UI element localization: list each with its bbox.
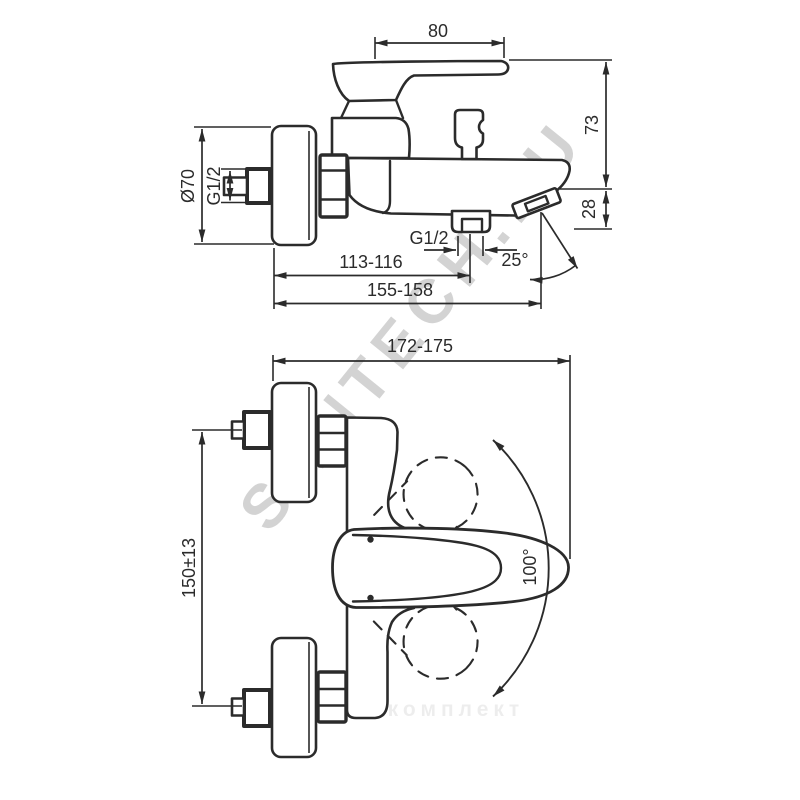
dim-spout-drop-label: 28 <box>579 199 599 219</box>
pipe-stub-plan-bottom <box>232 699 244 716</box>
dim-inlet-thread-label: G1/2 <box>204 166 224 205</box>
side-view-faucet <box>224 61 570 245</box>
drawing-page: SANTECH.RU сантехкомплект <box>0 0 800 800</box>
hex-nut-plan-top <box>318 416 346 466</box>
shower-outlet-flange <box>452 211 490 232</box>
inlet-pipe-stub-side <box>224 178 247 196</box>
top-connection-plan <box>232 383 346 502</box>
side-view: 80 73 28 Ø70 <box>178 21 612 309</box>
lever-pivot-dot-bottom <box>367 595 373 601</box>
dim-shower-outlet-thread-label: G1/2 <box>409 228 448 248</box>
dim-connection-spacing: 150±13 <box>179 430 242 706</box>
plan-view: 100° 172-175 150±13 <box>179 336 570 757</box>
dim-spout-angle: 25° <box>501 213 577 280</box>
dim-connection-spacing-label: 150±13 <box>179 538 199 598</box>
lever-pivot-dot-top <box>367 536 373 542</box>
hex-nut-plan-bottom <box>318 672 346 722</box>
diverter-knob <box>455 110 483 159</box>
lever-handle-side <box>333 61 508 101</box>
dim-handle-width-label: 80 <box>428 21 448 41</box>
wall-escutcheon-side <box>272 126 316 245</box>
technical-drawing-svg: 80 73 28 Ø70 <box>0 0 800 800</box>
escutcheon-plan-top <box>272 383 316 502</box>
cartridge-dome <box>332 118 410 158</box>
dim-body-height-label: 73 <box>582 115 602 135</box>
dim-spout-angle-label: 25° <box>501 250 528 270</box>
dim-overall-depth-label: 172-175 <box>387 336 453 356</box>
bottom-connection-plan <box>232 638 346 757</box>
fitting-plan-bottom <box>244 690 270 726</box>
inlet-hex-nut-side <box>320 155 347 217</box>
lever-neck-right-line <box>396 100 403 118</box>
dim-spout-drop: 28 <box>560 189 612 229</box>
dim-wall-to-spout-label: 155-158 <box>367 280 433 300</box>
dim-escutcheon-diameter-label: Ø70 <box>178 169 198 203</box>
dim-handle-width: 80 <box>375 21 504 59</box>
escutcheon-plan-bottom <box>272 638 316 757</box>
fitting-plan-top <box>244 412 270 448</box>
dim-handle-swing-label: 100° <box>520 548 540 585</box>
lever-neck-left-line <box>341 101 349 118</box>
inlet-fitting-side <box>247 169 270 203</box>
dim-wall-to-outlet-label: 113-116 <box>339 252 402 272</box>
